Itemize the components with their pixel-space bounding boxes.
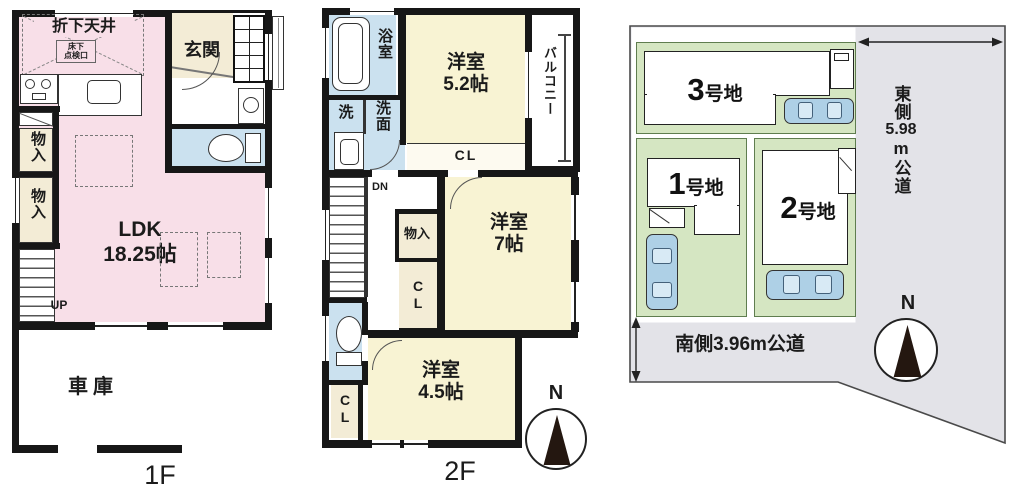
- wall-entrance-left: [165, 13, 172, 171]
- south-road-label: 南側3.96m公道: [652, 334, 828, 356]
- bedroom52-label: 洋室 5.2帖: [426, 52, 506, 97]
- dashed-furniture-a: [160, 232, 198, 287]
- door-gap-toilet-2f: [362, 335, 368, 361]
- storage-b-label: 物入: [27, 188, 48, 220]
- floor-hatch-label: 床下 点検口: [56, 40, 96, 63]
- compass-site-icon: [874, 318, 938, 382]
- east-road-direction: 東側: [889, 85, 914, 121]
- car-window: [652, 282, 672, 298]
- lot-3-car-icon: [784, 98, 854, 124]
- lot-3-bed-icon: [830, 49, 854, 89]
- bathtub: [332, 17, 370, 91]
- wall-balcony-bottom: [532, 166, 578, 172]
- lot-3-pillow-icon: [834, 53, 849, 61]
- hatched-cabinet: [19, 112, 53, 126]
- burner-icon: [41, 79, 51, 89]
- window-2f-bottom-a: [372, 440, 400, 448]
- car-window: [815, 275, 832, 294]
- cabinet-diagonal-line: [20, 113, 54, 127]
- lot-2-desk-icon: [838, 148, 856, 194]
- wall-1f-garage-bottom-b: [97, 445, 182, 453]
- compass-2f-icon: [525, 408, 587, 470]
- lot-2-desk-line: [839, 157, 852, 171]
- floor2-title: 2F: [428, 456, 492, 488]
- garage-label: 車庫: [58, 376, 128, 400]
- car-window: [827, 102, 842, 119]
- toilet-bowl-2f: [336, 316, 362, 352]
- washroom-label: 洗面: [372, 100, 393, 132]
- lot-2-label: 2号地: [768, 190, 848, 226]
- laundry-label: 洗: [336, 104, 356, 122]
- east-road-suffix: m公道: [889, 139, 914, 195]
- bathtub-inner: [338, 23, 363, 84]
- window-1f-ldk-bottom-b: [168, 322, 223, 330]
- wall-1f-left: [12, 10, 19, 453]
- compass-2f-north-label: N: [542, 382, 570, 406]
- wall-2f-lower-mid: [362, 330, 578, 338]
- lot-3-label: 3号地: [670, 72, 760, 108]
- wall-storage-2f-top: [395, 209, 441, 214]
- washing-machine: [334, 132, 364, 170]
- wall-stairs-2f-right: [365, 177, 368, 297]
- window-2f-left-a: [322, 28, 329, 78]
- toilet-bowl-1f: [208, 134, 244, 162]
- lot-1-footprint-b: [694, 205, 740, 235]
- bedroom7-label: 洋室 7帖: [470, 212, 548, 257]
- wall-laundry-divider: [363, 100, 366, 134]
- closet-top-label: CL: [448, 147, 484, 164]
- bath-label: 浴室: [374, 28, 395, 60]
- washer-drum-icon: [340, 139, 359, 165]
- wall-toilet-1f-bottom: [165, 166, 272, 173]
- wall-storage-right: [53, 106, 59, 249]
- compass-site-north-label: N: [892, 292, 924, 316]
- window-1f-ldk-bottom-a: [95, 322, 147, 330]
- shoe-cabinet: [233, 15, 265, 83]
- grill-icon: [32, 93, 46, 100]
- door-gap-bedroom7: [448, 170, 478, 177]
- door-1f-right-entrance: [265, 34, 272, 80]
- lot-1-label: 1号地: [656, 166, 736, 202]
- window-balcony-door: [525, 52, 532, 118]
- stairs-up-label: UP: [46, 298, 72, 312]
- washbasin-1f: [238, 88, 264, 124]
- window-2f-top: [350, 8, 394, 15]
- window-1f-left: [12, 178, 19, 223]
- closet-mid-label: C L: [408, 278, 428, 311]
- balcony-dimension-line: [564, 34, 566, 162]
- window-2f-right-a: [571, 195, 579, 240]
- window-2f-left-c: [322, 316, 329, 361]
- lot-2-car-icon: [766, 270, 844, 300]
- porch-steps: [272, 16, 284, 90]
- balcony-dim-tick-bottom: [558, 160, 571, 162]
- lot-1-desk-icon: [649, 208, 685, 228]
- burner-icon: [25, 79, 35, 89]
- site-plan: 3号地 1号地 2号地 東側 5.98 m公道 南側3.96m公道: [628, 22, 1014, 452]
- floor-plan-2f: DN 浴室 洗 洗面 洋室 5.2帖 バルコニー CL 物入 C L: [300, 0, 620, 495]
- east-road-width-value: 5.98: [885, 121, 916, 139]
- wall-1f-garage-bottom-a: [12, 445, 58, 453]
- dashed-dining-table: [75, 135, 133, 187]
- kitchen-counter: [58, 74, 142, 116]
- floor-plan-1f: 折下天井 床下 点検口 玄関: [0, 0, 300, 495]
- stairs-2f: [329, 177, 365, 298]
- lowered-ceiling-label: 折下天井: [34, 18, 134, 37]
- porch-step-line: [278, 18, 279, 88]
- wall-2f-7-left: [437, 177, 445, 332]
- toilet-tank-1f: [245, 133, 261, 163]
- lot-1-footprint-seam: [697, 203, 737, 209]
- wall-2f-bath-bottom: [329, 95, 405, 100]
- lot-1-car-icon: [646, 234, 678, 310]
- floorplan-canvas: 折下天井 床下 点検口 玄関: [0, 0, 1017, 495]
- compass-site-needle-icon: [891, 325, 924, 377]
- basin-bowl-icon: [243, 97, 259, 113]
- door-gap-washroom: [372, 170, 398, 177]
- wall-toilet-1f-top: [172, 124, 272, 129]
- window-2f-left-b: [322, 210, 329, 260]
- balcony-dim-tick-top: [558, 34, 571, 36]
- wall-closet-bottom-right: [358, 385, 363, 440]
- window-2f-bottom-b: [404, 440, 428, 448]
- compass-2f-needle-icon: [541, 415, 573, 465]
- wall-balcony-right: [573, 14, 580, 172]
- car-window: [783, 275, 800, 294]
- east-road-label: 東側 5.98 m公道: [878, 70, 924, 210]
- storage-2f-label: 物入: [398, 226, 436, 241]
- floor1-title: 1F: [128, 460, 192, 492]
- wall-2f-bath-right: [398, 8, 406, 98]
- sink-icon: [87, 80, 121, 104]
- window-2f-right-b: [571, 282, 579, 322]
- lot-1-desk-line: [649, 209, 669, 224]
- wall-2f-wash-right: [400, 95, 406, 145]
- window-1f-right-b: [265, 258, 272, 303]
- toilet-tank-2f: [336, 352, 362, 366]
- stairs-down-label: DN: [366, 181, 394, 194]
- dashed-furniture-b: [207, 232, 241, 278]
- window-1f-right-a: [265, 188, 272, 238]
- wall-storage-2f-bottom: [395, 258, 441, 262]
- window-1f-top: [55, 10, 133, 17]
- closet-bottom-label: C L: [335, 392, 355, 425]
- bedroom45-label: 洋室 4.5帖: [398, 360, 484, 405]
- balcony-label: バルコニー: [540, 46, 559, 116]
- wall-2f-45-right: [515, 332, 522, 448]
- stove: [20, 74, 58, 104]
- storage-a-label: 物入: [27, 131, 48, 163]
- car-window: [798, 102, 813, 119]
- car-window: [652, 248, 672, 264]
